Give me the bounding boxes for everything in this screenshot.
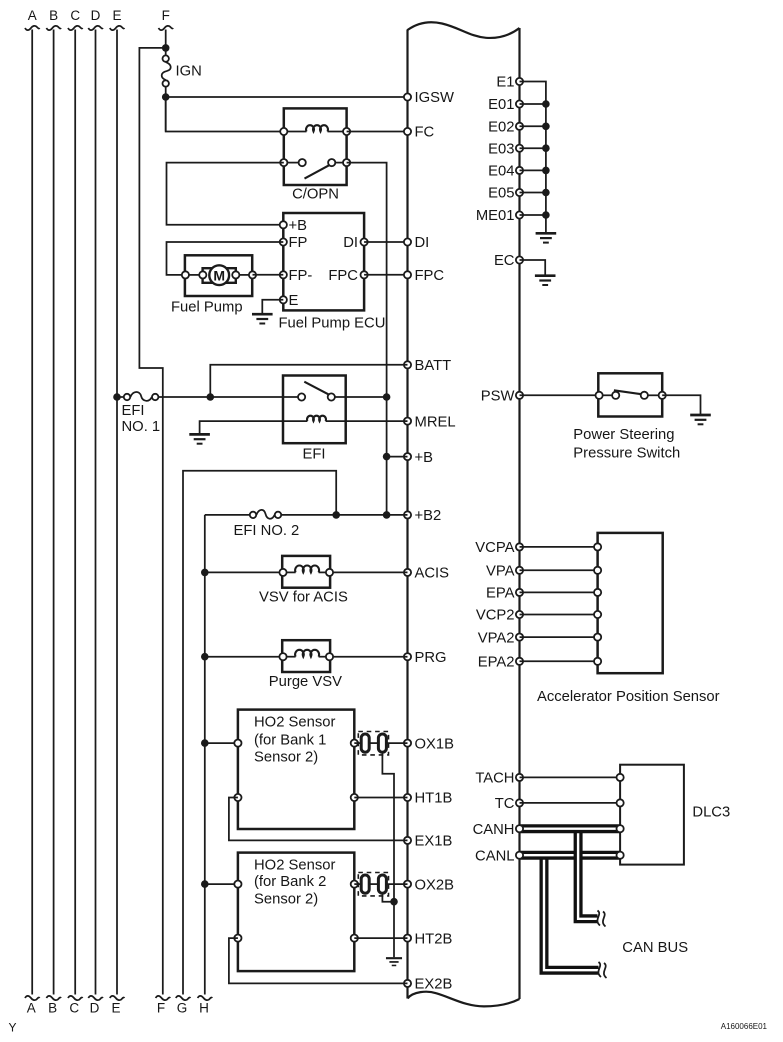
svg-text:CANL: CANL [475, 848, 514, 864]
svg-text:Purge VSV: Purge VSV [269, 674, 342, 690]
svg-text:TC: TC [495, 796, 515, 812]
svg-text:D: D [91, 8, 101, 23]
svg-text:IGSW: IGSW [415, 90, 454, 106]
svg-text:PRG: PRG [415, 650, 447, 666]
svg-text:Sensor 2): Sensor 2) [254, 891, 318, 907]
svg-text:C/OPN: C/OPN [292, 187, 339, 203]
svg-text:Accelerator Position Sensor: Accelerator Position Sensor [537, 689, 720, 705]
svg-text:E: E [112, 8, 121, 23]
svg-text:E03: E03 [488, 141, 514, 157]
svg-text:ME01: ME01 [476, 208, 515, 224]
svg-text:Sensor 2): Sensor 2) [254, 750, 318, 766]
svg-text:HO2 Sensor: HO2 Sensor [254, 858, 335, 874]
svg-text:VPA: VPA [486, 564, 515, 580]
svg-text:Fuel Pump ECU: Fuel Pump ECU [279, 316, 386, 332]
svg-text:EC: EC [494, 253, 515, 269]
svg-text:E04: E04 [488, 164, 514, 180]
svg-text:FPC: FPC [415, 268, 445, 284]
svg-text:HT1B: HT1B [415, 791, 453, 807]
svg-text:VCPA: VCPA [475, 540, 514, 556]
svg-text:E05: E05 [488, 186, 514, 202]
svg-text:ACIS: ACIS [415, 566, 450, 582]
svg-text:VCP2: VCP2 [476, 608, 515, 624]
svg-text:DLC3: DLC3 [692, 805, 730, 821]
svg-text:F: F [157, 1001, 165, 1016]
svg-text:TACH: TACH [475, 771, 514, 787]
svg-text:H: H [199, 1001, 209, 1016]
svg-text:HT2B: HT2B [415, 931, 453, 947]
svg-text:OX2B: OX2B [415, 877, 455, 893]
svg-text:C: C [69, 1001, 79, 1016]
svg-text:OX1B: OX1B [415, 736, 455, 752]
svg-text:Power Steering: Power Steering [573, 427, 674, 443]
svg-text:(for Bank 1: (for Bank 1 [254, 733, 326, 749]
svg-text:EPA: EPA [486, 586, 515, 602]
svg-text:+B: +B [415, 450, 434, 466]
svg-text:EX1B: EX1B [415, 834, 453, 850]
svg-text:EPA2: EPA2 [478, 655, 515, 671]
svg-text:VPA2: VPA2 [478, 630, 515, 646]
svg-text:Pressure Switch: Pressure Switch [573, 446, 680, 462]
svg-text:A: A [28, 8, 37, 23]
svg-text:+B2: +B2 [415, 508, 442, 524]
svg-text:D: D [90, 1001, 100, 1016]
svg-text:EFI: EFI [122, 403, 145, 419]
svg-text:PSW: PSW [481, 389, 515, 405]
svg-text:A: A [27, 1001, 36, 1016]
svg-text:Y: Y [9, 1021, 17, 1035]
svg-text:FP-: FP- [289, 268, 313, 284]
svg-text:E: E [289, 293, 299, 309]
svg-text:B: B [49, 8, 58, 23]
svg-text:CANH: CANH [473, 822, 515, 838]
svg-text:C: C [70, 8, 80, 23]
svg-text:(for Bank 2: (for Bank 2 [254, 874, 326, 890]
svg-text:HO2 Sensor: HO2 Sensor [254, 715, 335, 731]
svg-text:BATT: BATT [415, 358, 452, 374]
svg-text:NO. 1: NO. 1 [122, 419, 161, 435]
svg-text:EFI: EFI [302, 447, 325, 463]
svg-text:A160066E01: A160066E01 [721, 1022, 768, 1031]
svg-text:EX2B: EX2B [415, 977, 453, 993]
svg-text:EFI NO. 2: EFI NO. 2 [234, 523, 300, 539]
svg-text:E1: E1 [496, 75, 514, 91]
svg-text:DI: DI [415, 235, 430, 251]
svg-text:+B: +B [289, 218, 308, 234]
svg-text:E02: E02 [488, 120, 514, 136]
svg-text:M: M [213, 267, 225, 283]
svg-text:F: F [162, 8, 170, 23]
svg-text:VSV for ACIS: VSV for ACIS [259, 590, 348, 606]
svg-text:B: B [48, 1001, 57, 1016]
svg-text:FP: FP [289, 235, 308, 251]
svg-text:G: G [177, 1001, 188, 1016]
svg-text:MREL: MREL [415, 414, 456, 430]
svg-text:FPC: FPC [328, 268, 358, 284]
svg-text:DI: DI [343, 235, 358, 251]
svg-text:CAN BUS: CAN BUS [622, 940, 688, 956]
svg-text:Fuel Pump: Fuel Pump [171, 300, 243, 316]
svg-text:FC: FC [415, 125, 435, 141]
svg-text:E: E [111, 1001, 120, 1016]
svg-text:IGN: IGN [176, 64, 202, 80]
svg-text:E01: E01 [488, 97, 514, 113]
